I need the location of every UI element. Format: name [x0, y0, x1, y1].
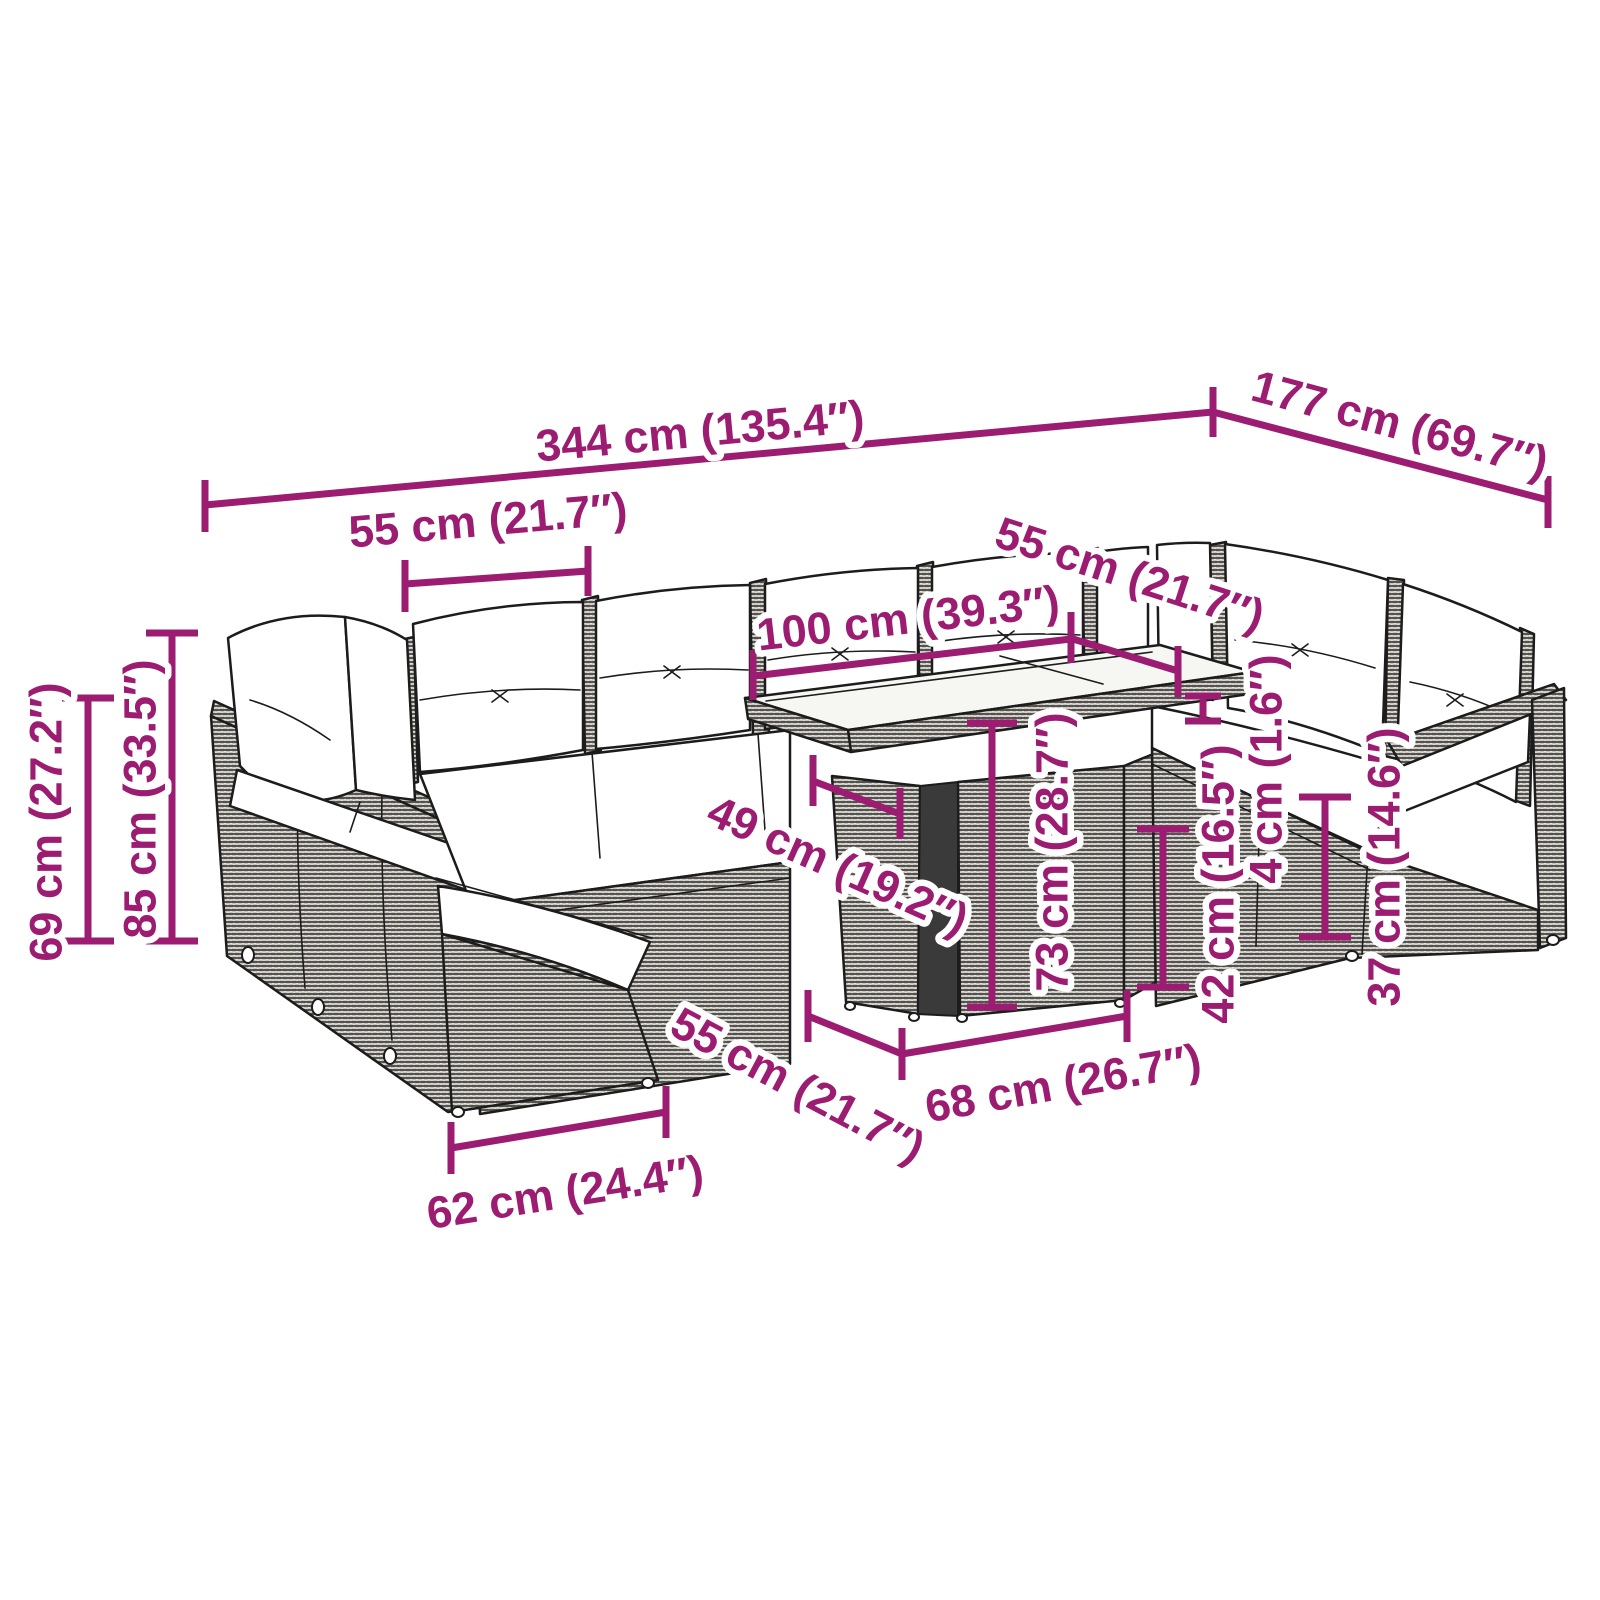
dim-seat-height-label: 37 cm (14.6″)	[1359, 727, 1410, 1006]
dim-back-height-label: 69 cm (27.2″)	[21, 682, 72, 961]
dim-back-height: 69 cm (27.2″)	[21, 682, 115, 961]
garden-sofa-dimension-diagram: 344 cm (135.4″) 177 cm (69.7″) 55 cm (21…	[0, 0, 1600, 1600]
dim-overall-height: 85 cm (33.5″)	[115, 633, 199, 941]
dim-seat-width-front-label: 55 cm (21.7″)	[663, 997, 933, 1173]
dim-table-base-length-label: 68 cm (26.7″)	[921, 1034, 1205, 1133]
dimension-diagram-page: 344 cm (135.4″) 177 cm (69.7″) 55 cm (21…	[0, 0, 1600, 1600]
dim-module-width-label: 62 cm (24.4″)	[423, 1145, 707, 1239]
dim-table-base-height-label: 42 cm (16.5″)	[1193, 744, 1244, 1023]
dim-overall-height-label: 85 cm (33.5″)	[115, 659, 166, 938]
dim-tabletop-thickness-label: 4 cm (1.6″)	[1241, 654, 1292, 883]
pillow	[345, 617, 415, 800]
pillow	[596, 585, 750, 749]
dim-overall-depth: 177 cm (69.7″)	[1213, 360, 1554, 528]
dim-table-height-label: 73 cm (28.7″)	[1027, 712, 1078, 991]
dim-overall-depth-label: 177 cm (69.7″)	[1246, 360, 1553, 488]
dim-seat-width-back: 55 cm (21.7″)	[347, 482, 630, 612]
pillow	[413, 602, 583, 772]
dim-seat-width-front: 55 cm (21.7″)	[663, 990, 933, 1173]
